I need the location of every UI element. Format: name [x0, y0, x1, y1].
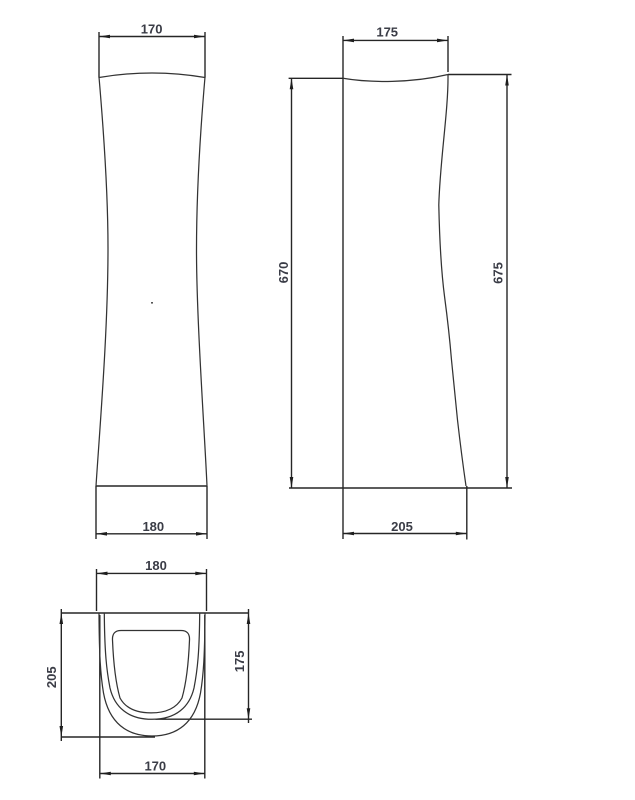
- svg-text:205: 205: [391, 519, 413, 534]
- svg-text:170: 170: [144, 758, 166, 773]
- svg-text:170: 170: [141, 21, 163, 36]
- svg-text:180: 180: [145, 558, 167, 573]
- svg-text:180: 180: [142, 519, 164, 534]
- svg-text:675: 675: [491, 262, 506, 284]
- svg-text:175: 175: [376, 25, 398, 40]
- svg-text:205: 205: [44, 666, 59, 688]
- svg-text:670: 670: [276, 262, 291, 284]
- svg-text:175: 175: [232, 651, 247, 673]
